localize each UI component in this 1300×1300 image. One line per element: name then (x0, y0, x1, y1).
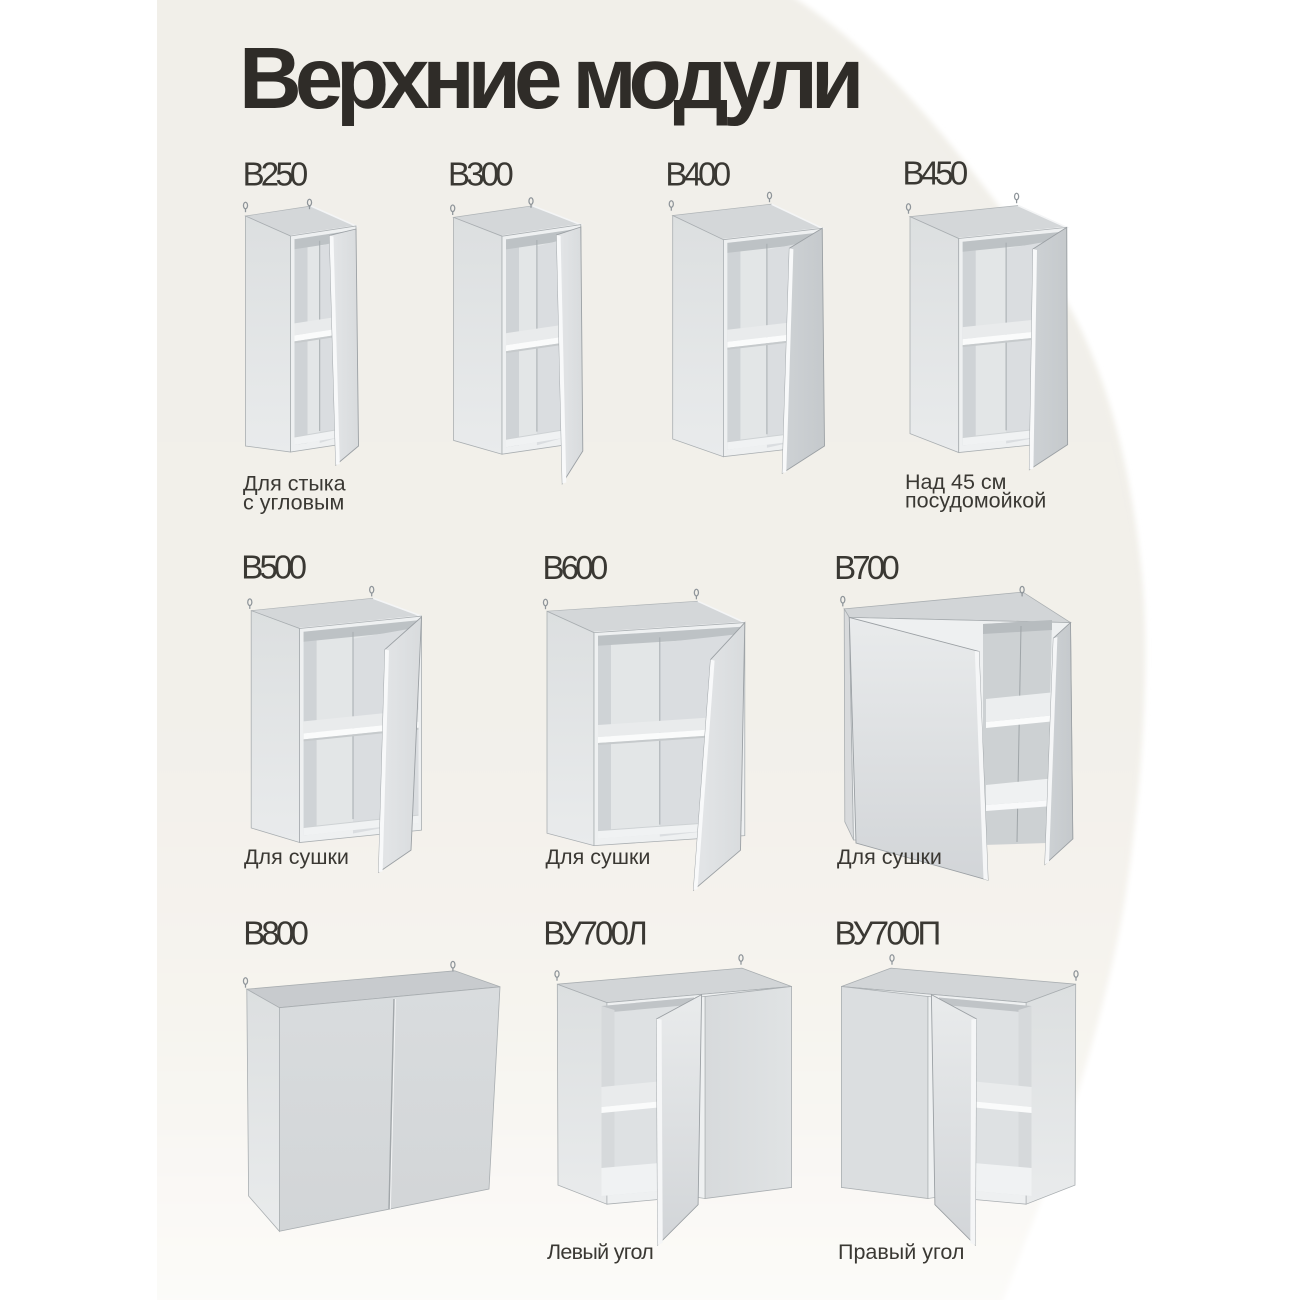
svg-text:В300: В300 (448, 156, 513, 193)
svg-text:В700: В700 (834, 549, 899, 586)
svg-text:В500: В500 (241, 549, 306, 586)
svg-text:Для сушки: Для сушки (546, 845, 651, 869)
svg-text:ВУ700Л: ВУ700Л (543, 915, 645, 952)
svg-text:Для сушки: Для сушки (244, 845, 349, 869)
svg-text:В600: В600 (543, 549, 608, 586)
svg-text:ВУ700П: ВУ700П (835, 915, 940, 952)
svg-text:Левый угол: Левый угол (547, 1240, 653, 1264)
svg-text:посудомойкой: посудомойкой (905, 489, 1046, 513)
svg-text:В400: В400 (665, 156, 730, 193)
svg-text:Для сушки: Для сушки (837, 845, 942, 869)
svg-text:В250: В250 (243, 156, 308, 193)
svg-text:Правый угол: Правый угол (838, 1240, 964, 1264)
svg-text:Верхние модули: Верхние модули (239, 30, 859, 127)
svg-text:с угловым: с угловым (243, 491, 344, 515)
svg-text:В800: В800 (243, 915, 308, 952)
svg-text:В450: В450 (903, 155, 968, 192)
